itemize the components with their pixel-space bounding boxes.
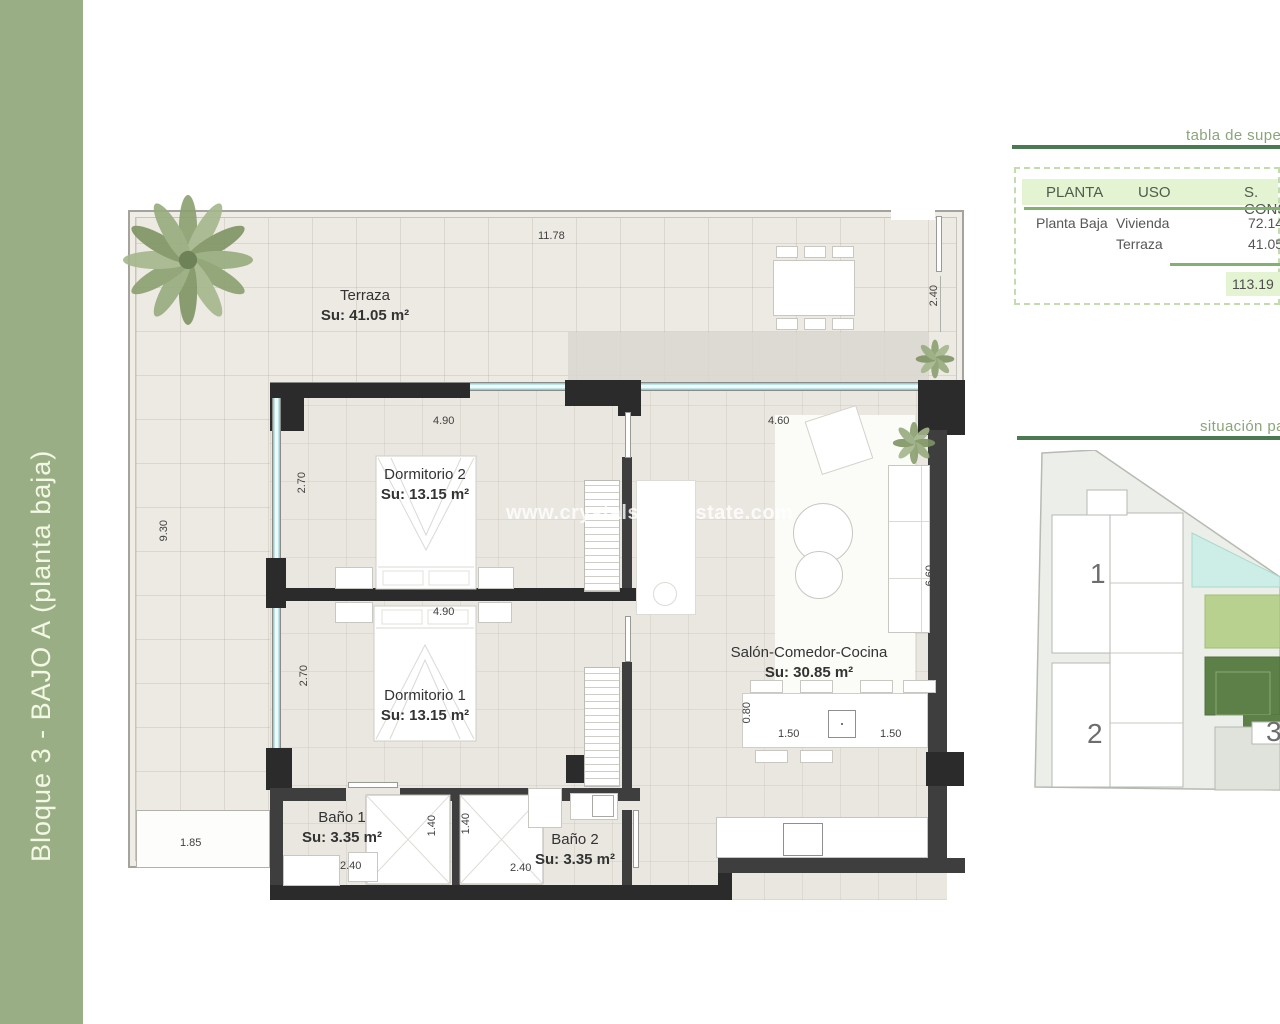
door-icon <box>625 412 631 458</box>
terrace-gate-door-icon <box>936 216 942 272</box>
washbasin-icon <box>283 855 340 886</box>
col-uso: USO <box>1138 184 1171 201</box>
dim-terrace-gate: 2.40 <box>928 285 940 306</box>
room-area: Su: 13.15 m² <box>345 485 505 505</box>
total-rule <box>1170 263 1280 266</box>
cell-planta: Planta Baja <box>1036 215 1108 231</box>
terrace-gate-opening <box>891 208 935 220</box>
toilet-icon <box>528 788 562 828</box>
divider <box>1012 145 1280 149</box>
col-superficie: S. CONS <box>1244 184 1280 218</box>
sink-icon <box>783 823 823 856</box>
page: { "side_band": { "label": "Bloque 3 - BA… <box>0 0 1280 1024</box>
hob-icon <box>828 710 856 738</box>
side-band-label: Bloque 3 - BAJO A (planta baja) <box>26 452 57 862</box>
stool-icon <box>800 750 833 763</box>
surface-table: PLANTA USO S. CONS Planta Baja Vivienda … <box>1014 167 1280 305</box>
site-building-2: 2 <box>1087 718 1103 750</box>
dim-line <box>940 276 941 332</box>
wall-pillar <box>926 752 964 786</box>
cell-sup: 41.05 <box>1248 236 1280 252</box>
dim-dorm1-width: 4.90 <box>433 606 454 618</box>
chair-icon <box>832 318 854 330</box>
dim-island-depth: 0.80 <box>741 702 753 723</box>
divider <box>1017 436 1280 440</box>
dim-island-left: 1.50 <box>778 728 799 740</box>
room-area: Su: 41.05 m² <box>285 306 445 326</box>
wardrobe-icon <box>584 480 620 592</box>
wall-pillar <box>565 380 641 406</box>
dining-table-icon <box>773 260 855 316</box>
exterior-mask <box>947 426 966 868</box>
surface-table-title: tabla de supe <box>1186 127 1280 144</box>
palm-tree-icon <box>123 195 253 330</box>
plant-icon <box>914 338 956 385</box>
dim-planter: 1.85 <box>180 837 201 849</box>
planter <box>136 810 270 868</box>
nightstand-icon <box>478 567 514 589</box>
dim-dorm1-depth: 2.70 <box>298 665 310 686</box>
site-building-1: 1 <box>1090 558 1106 590</box>
col-planta: PLANTA <box>1046 184 1103 201</box>
dim-shower2: 1.40 <box>460 813 472 834</box>
sofa-icon <box>888 465 930 633</box>
room-area: Su: 3.35 m² <box>262 828 422 848</box>
room-name: Terraza <box>340 287 390 304</box>
site-building-3: 3 <box>1266 716 1280 748</box>
dim-salon-width: 4.60 <box>768 415 789 427</box>
room-label-bano1: Baño 1 Su: 3.35 m² <box>262 808 422 847</box>
room-name: Baño 2 <box>551 831 599 848</box>
room-name: Dormitorio 1 <box>384 687 466 704</box>
dim-terrace-left: 9.30 <box>158 520 170 541</box>
chair-icon <box>776 246 798 258</box>
surface-table-header: PLANTA USO S. CONS <box>1022 179 1278 205</box>
floor-plan: Terraza Su: 41.05 m² Dormitorio 2 Su: 13… <box>128 210 966 910</box>
chair-icon <box>776 318 798 330</box>
total-value: 113.19 <box>1232 276 1274 292</box>
room-area: Su: 13.15 m² <box>345 706 505 726</box>
nightstand-icon <box>335 602 373 623</box>
wall <box>928 430 947 858</box>
dim-dorm2-depth: 2.70 <box>296 472 308 493</box>
plant-icon <box>891 420 937 471</box>
cell-uso: Terraza <box>1116 236 1163 252</box>
dim-island-right: 1.50 <box>880 728 901 740</box>
room-label-salon: Salón-Comedor-Cocina Su: 30.85 m² <box>699 643 919 682</box>
fixture-icon <box>653 582 677 606</box>
room-name: Dormitorio 2 <box>384 466 466 483</box>
dim-top-width: 11.78 <box>538 230 565 242</box>
chair-icon <box>804 318 826 330</box>
dim-salon-depth: 6.60 <box>924 565 936 586</box>
dim-shower1: 1.40 <box>426 815 438 836</box>
watermark: www.crystals-realestate.com <box>506 502 793 525</box>
window-glazing <box>272 608 281 748</box>
room-name: Salón-Comedor-Cocina <box>731 644 888 661</box>
nightstand-icon <box>335 567 373 589</box>
header-underline <box>1024 207 1280 210</box>
wall <box>622 662 632 788</box>
chair-icon <box>832 246 854 258</box>
wall-pillar <box>266 748 292 790</box>
nightstand-icon <box>478 602 512 623</box>
dim-bano1-width: 2.40 <box>340 860 361 872</box>
room-label-terraza: Terraza Su: 41.05 m² <box>285 286 445 325</box>
room-area: Su: 30.85 m² <box>699 663 919 683</box>
dim-bano2-width: 2.40 <box>510 862 531 874</box>
room-label-dorm1: Dormitorio 1 Su: 13.15 m² <box>345 686 505 725</box>
chair-icon <box>804 246 826 258</box>
coffee-table-icon <box>795 551 843 599</box>
door-icon <box>625 616 631 662</box>
room-label-dorm2: Dormitorio 2 Su: 13.15 m² <box>345 465 505 504</box>
cell-uso: Vivienda <box>1116 215 1169 231</box>
sink-icon <box>592 795 614 817</box>
dim-dorm2-width: 4.90 <box>433 415 454 427</box>
wall <box>718 858 965 873</box>
door-icon <box>348 782 398 788</box>
window-glazing <box>272 398 281 558</box>
cell-sup: 72.14 <box>1248 215 1280 231</box>
stool-icon <box>755 750 788 763</box>
wardrobe-icon <box>584 667 620 787</box>
site-plan-title: situación pa <box>1200 418 1280 435</box>
site-plan <box>1017 450 1280 795</box>
room-name: Baño 1 <box>318 809 366 826</box>
